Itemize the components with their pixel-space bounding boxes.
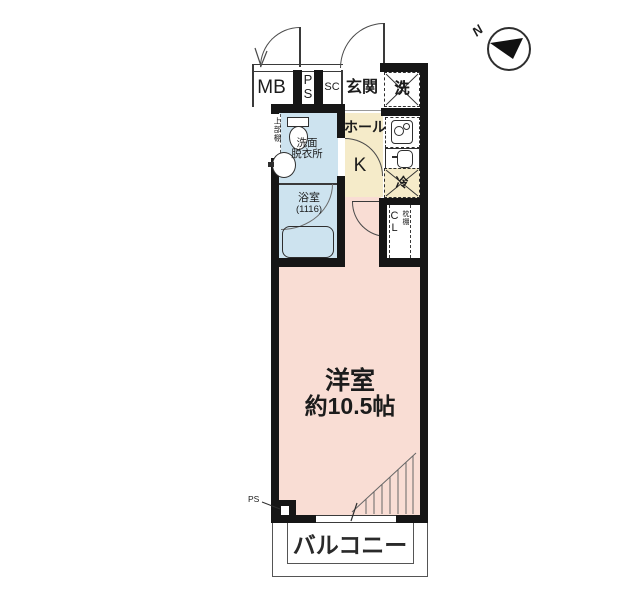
bathroom-label: 浴室 [288, 193, 330, 205]
washroom-shelf-note: 上部棚 [271, 117, 281, 157]
entrance-door-leaf [383, 23, 385, 68]
entrance-label: 玄関 [342, 80, 382, 97]
hall-label: ホール [344, 120, 384, 135]
wall-right [420, 63, 428, 523]
bathtub-icon [282, 226, 334, 258]
bathroom-size-note: (1116) [288, 205, 330, 215]
shoe-closet-label: SC [322, 82, 342, 94]
meter-box-door-arc [260, 27, 300, 67]
closet-shelf-line [410, 205, 411, 258]
pipe-space-wall-left [293, 70, 302, 113]
closet-letter-l: L [389, 223, 400, 235]
main-room-label: 洋室 [290, 368, 410, 394]
kitchen-faucet-icon [392, 156, 398, 158]
entrance-step-line [345, 110, 383, 111]
wall-washroom-hall-lower [337, 176, 345, 267]
meter-box-door-leaf [299, 27, 301, 67]
pipe-space-letter-s: S [302, 87, 314, 101]
kitchen-sink-icon [397, 150, 413, 168]
closet-letter-c: C [389, 211, 400, 223]
wall-kitchen-top [381, 108, 428, 116]
compass-north-label: N [470, 23, 486, 39]
closet-label: C L [389, 211, 400, 234]
pipe-space-letter-p: P [302, 73, 314, 87]
washroom-label: 洗面 脱衣所 [284, 138, 330, 160]
wall-bottom-right [396, 515, 428, 523]
floor-plan: MB P S SC 玄関 洗 洗 ホール K 冷 洗面 脱衣所 上部棚 浴室 (… [0, 0, 640, 600]
pipe-space-top-label: P S [302, 73, 314, 100]
wall-under-top-row [271, 104, 345, 113]
entrance-door-arc [340, 23, 384, 68]
meter-box-label: MB [250, 78, 293, 98]
wall-bathroom-bottom [271, 258, 345, 267]
pipe-space-bottom-notch [281, 506, 289, 515]
wall-closet-left [379, 198, 387, 265]
washroom-label-line2: 脱衣所 [284, 149, 330, 160]
laundry-glyph: 洗 [384, 81, 420, 97]
wall-closet-top [379, 198, 428, 205]
main-window [316, 515, 396, 523]
pipe-space-bottom-label: PS [248, 495, 259, 504]
refrigerator-label: 冷 [384, 176, 420, 190]
closet-shelf-note: 枕棚 [400, 210, 409, 244]
main-room-size: 約10.5帖 [290, 394, 410, 418]
wall-closet-bottom [379, 258, 428, 267]
kitchen-label: K [350, 156, 370, 176]
washbasin-faucet-icon [268, 162, 274, 167]
stove-burner2-icon [403, 123, 410, 130]
balcony-label: バルコニー [290, 533, 410, 557]
compass-circle [487, 27, 531, 71]
